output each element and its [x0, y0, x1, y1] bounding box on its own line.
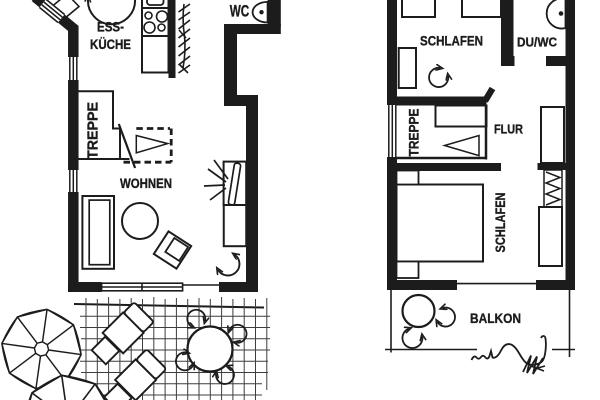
svg-text:DU/WC: DU/WC	[517, 35, 558, 50]
svg-text:TREPPE: TREPPE	[86, 102, 102, 159]
svg-text:ESS-: ESS-	[97, 20, 124, 35]
svg-text:WOHNEN: WOHNEN	[120, 176, 172, 191]
svg-text:BALKON: BALKON	[470, 310, 521, 326]
svg-text:SCHLAFEN: SCHLAFEN	[420, 33, 483, 49]
svg-text:TREPPE: TREPPE	[406, 109, 422, 157]
svg-text:FLUR: FLUR	[494, 122, 524, 137]
svg-text:WC: WC	[230, 3, 250, 21]
svg-text:SCHLAFEN: SCHLAFEN	[493, 193, 508, 253]
svg-text:KÜCHE: KÜCHE	[90, 37, 131, 52]
